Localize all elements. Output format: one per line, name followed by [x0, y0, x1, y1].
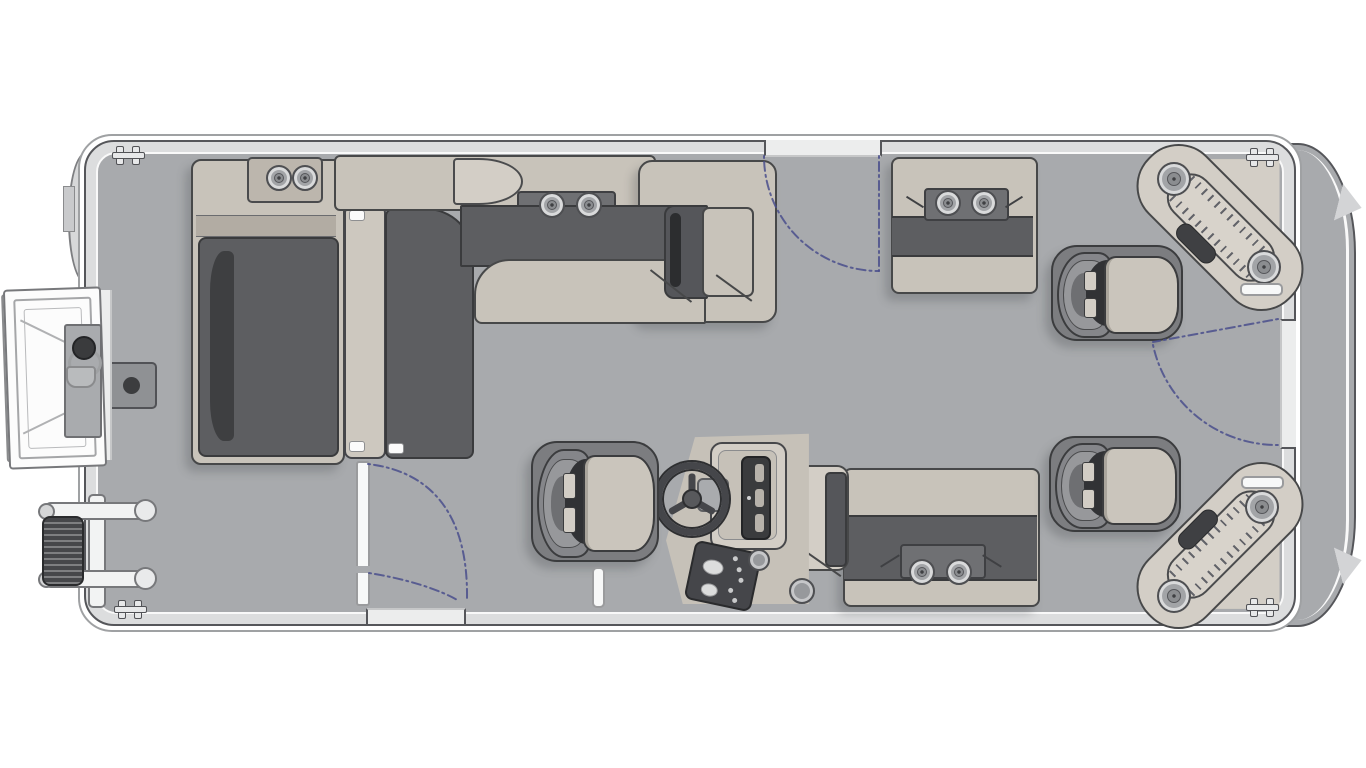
divider-hinge-bottom	[349, 441, 365, 452]
aft-bench-top-speaker-2	[971, 190, 997, 216]
switch-dot	[738, 577, 744, 583]
chair-bolster-pad	[563, 507, 576, 532]
switch-dot	[728, 587, 734, 593]
cleat-stern-bottom	[1246, 598, 1280, 615]
latch-base	[66, 366, 96, 388]
grab-handle-stern-top	[1240, 283, 1283, 296]
grab-handle-stern-bottom	[1241, 476, 1284, 489]
chair-cushion	[1104, 256, 1178, 334]
gate-opening-top	[764, 140, 882, 157]
chair-cushion	[583, 455, 655, 553]
stern-corner-bottom-speaker-2	[1157, 579, 1191, 613]
cleat-stern-top	[1246, 148, 1280, 165]
aft-bench-bottom-speaker-2	[946, 559, 972, 585]
aft-captain-chair-bottom	[1049, 436, 1181, 532]
stern-corner-bottom-speaker-1	[1245, 490, 1279, 524]
bow-lounge-speaker-1	[266, 165, 292, 191]
boat-floorplan-canvas	[0, 0, 1366, 768]
forward-bench-speaker-1	[539, 192, 565, 218]
chair-bolster-pad	[1082, 489, 1096, 509]
helm-console	[663, 432, 815, 604]
armrest-cap-cushion	[825, 472, 847, 567]
bow-ladder-assembly	[4, 284, 120, 470]
chair-bolster-pad	[1084, 271, 1098, 291]
corner-ladder	[38, 492, 158, 606]
cleat-bar	[1246, 604, 1279, 611]
cupholder	[789, 578, 815, 604]
rung-cap	[134, 499, 157, 522]
steering-wheel	[655, 462, 729, 536]
instrument-display	[741, 456, 771, 540]
bow-lounge-speaker-2	[292, 165, 318, 191]
stern-corner-top-speaker-2	[1247, 250, 1281, 284]
gate-leaf-open	[356, 461, 370, 606]
gate-opening-bottom	[366, 608, 466, 624]
switch-oval	[700, 582, 719, 598]
pontoon-nose-tab	[63, 186, 75, 232]
table-base-socket	[123, 377, 140, 394]
gauge-slot	[755, 464, 764, 482]
switch-dot	[736, 567, 742, 573]
aft-bench-bottom	[843, 468, 1040, 607]
aft-bench-top-cushion	[892, 216, 1033, 257]
deck-post	[592, 567, 605, 608]
aft-bench-top-speaker-1	[935, 190, 961, 216]
chair-bolster-pad	[1082, 462, 1096, 482]
cleat-bar	[114, 606, 147, 613]
forward-bench-group	[340, 155, 776, 323]
gate-leaf-gap	[356, 566, 370, 573]
bow-chaise-bed-left-accent	[210, 251, 234, 441]
display-dot	[747, 496, 751, 500]
chair-bolster-pad	[1084, 298, 1098, 318]
chair-cushion	[1102, 447, 1176, 525]
gauge-slot	[755, 514, 764, 532]
gauge-slot	[755, 489, 764, 507]
cupholder	[748, 549, 770, 571]
aft-bench-top	[891, 157, 1038, 294]
corner-seat-back-accent	[670, 213, 681, 287]
bed-hinge-mark	[388, 443, 404, 454]
rung-cap	[134, 567, 157, 590]
cleat-bar	[1246, 154, 1279, 161]
cleat-bow-top	[112, 146, 146, 163]
bow-lounge-headrest-band	[196, 215, 336, 237]
helm-captain-chair	[531, 441, 659, 562]
switch-dot	[732, 556, 738, 562]
ladder-grip-pad	[42, 516, 84, 586]
forward-bench-speaker-2	[576, 192, 602, 218]
switch-dot	[732, 597, 738, 603]
switch-oval	[701, 558, 725, 577]
aft-captain-chair-top	[1051, 245, 1183, 341]
aft-bench-bottom-speaker-1	[909, 559, 935, 585]
stern-corner-top-speaker-1	[1157, 162, 1191, 196]
latch-knob	[72, 336, 96, 360]
cleat-bar	[112, 152, 145, 159]
bow-chaise-bed-left	[198, 237, 339, 457]
wheel-hub	[682, 489, 702, 509]
gate-opening-stern-side	[1280, 319, 1296, 449]
chair-bolster-pad	[563, 473, 576, 498]
